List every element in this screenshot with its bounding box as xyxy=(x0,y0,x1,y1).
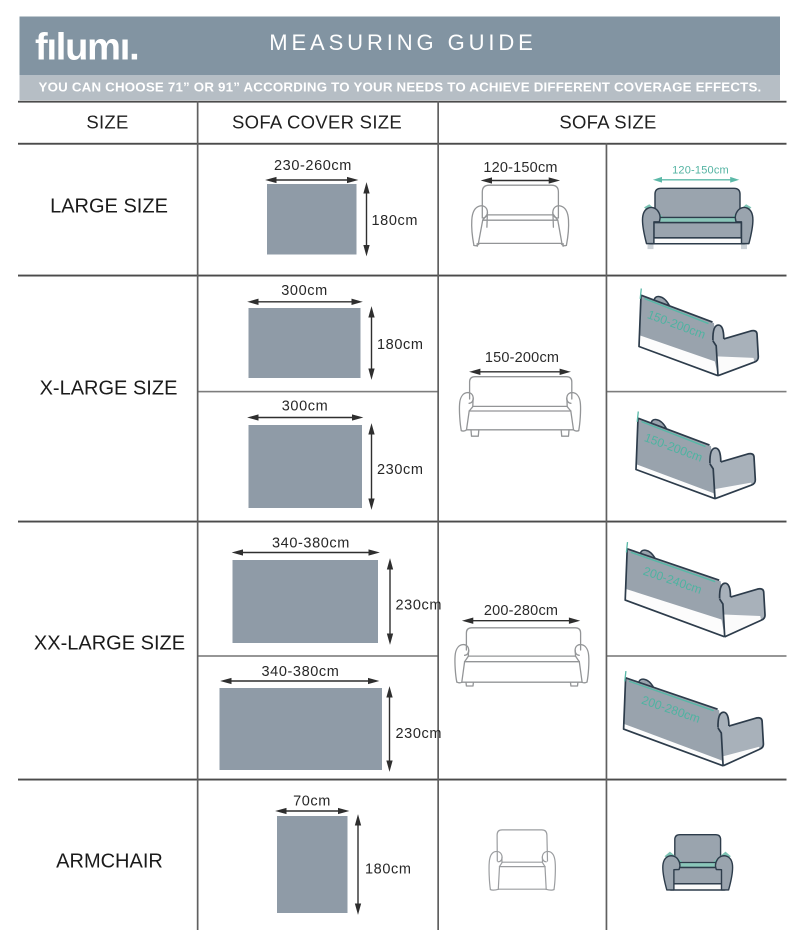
svg-text:180cm: 180cm xyxy=(372,213,419,229)
svg-text:180cm: 180cm xyxy=(377,337,424,353)
svg-text:X-LARGE SIZE: X-LARGE SIZE xyxy=(40,378,178,400)
svg-text:fılumı.: fılumı. xyxy=(35,27,139,69)
svg-text:230cm: 230cm xyxy=(396,726,443,742)
svg-text:230cm: 230cm xyxy=(377,462,424,478)
svg-text:SIZE: SIZE xyxy=(86,112,128,133)
svg-text:MEASURING GUIDE: MEASURING GUIDE xyxy=(269,30,537,55)
svg-text:300cm: 300cm xyxy=(282,399,329,415)
svg-text:ARMCHAIR: ARMCHAIR xyxy=(56,851,163,873)
svg-text:SOFA SIZE: SOFA SIZE xyxy=(559,112,656,133)
svg-text:120-150cm: 120-150cm xyxy=(672,165,729,177)
svg-text:200-280cm: 200-280cm xyxy=(484,603,558,619)
svg-text:230-260cm: 230-260cm xyxy=(274,158,352,174)
svg-text:300cm: 300cm xyxy=(281,283,328,299)
svg-text:340-380cm: 340-380cm xyxy=(272,536,350,552)
svg-text:180cm: 180cm xyxy=(365,862,412,878)
svg-text:LARGE SIZE: LARGE SIZE xyxy=(50,196,168,218)
svg-text:70cm: 70cm xyxy=(293,794,331,810)
svg-text:XX-LARGE SIZE: XX-LARGE SIZE xyxy=(34,633,185,655)
svg-text:SOFA COVER SIZE: SOFA COVER SIZE xyxy=(232,112,402,133)
svg-text:340-380cm: 340-380cm xyxy=(262,664,340,680)
svg-text:YOU CAN CHOOSE 71” OR 91” ACCO: YOU CAN CHOOSE 71” OR 91” ACCORDING TO Y… xyxy=(39,80,762,95)
svg-text:150-200cm: 150-200cm xyxy=(485,350,559,366)
svg-text:120-150cm: 120-150cm xyxy=(483,160,557,176)
svg-text:230cm: 230cm xyxy=(396,598,443,614)
